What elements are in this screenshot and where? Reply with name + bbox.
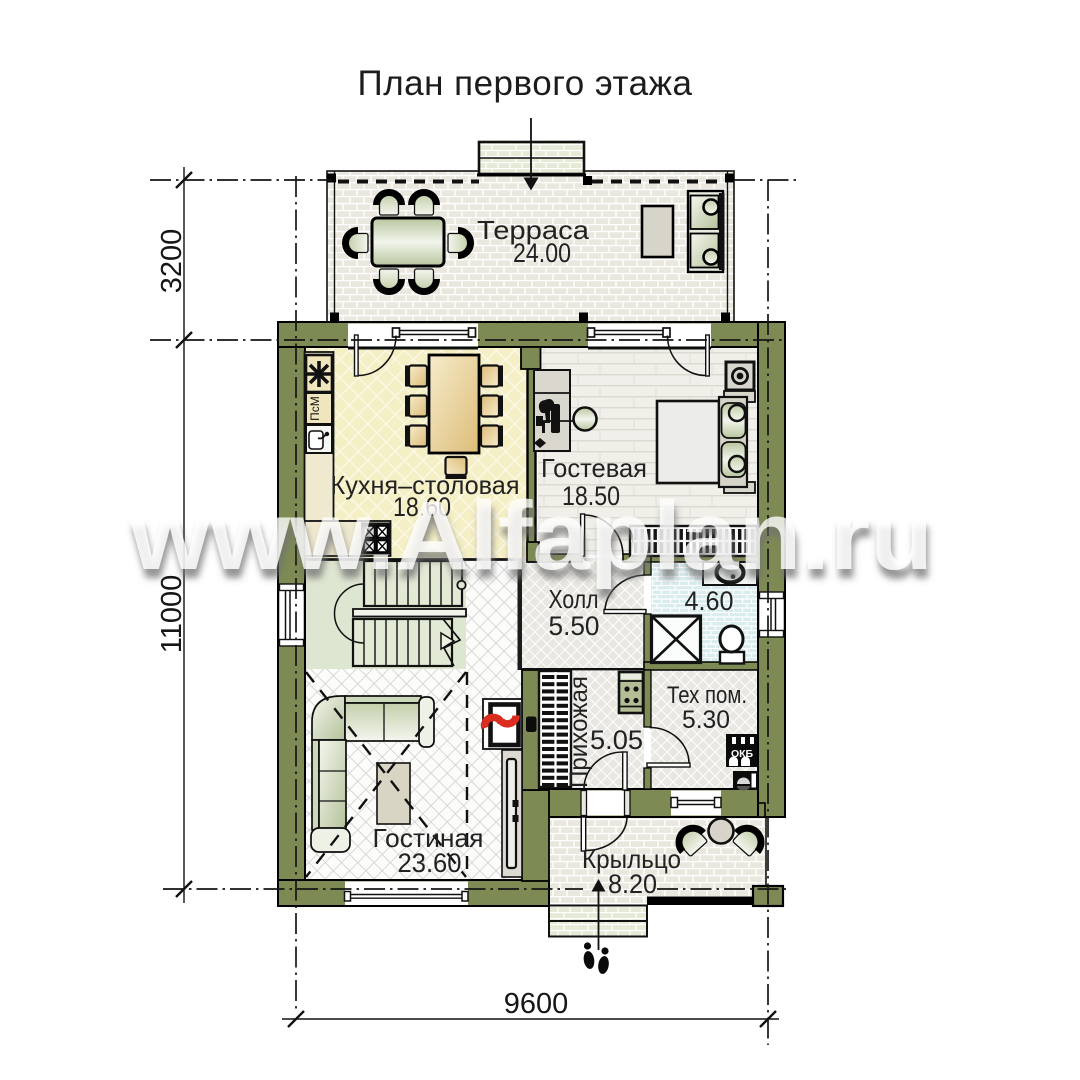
svg-text:9600: 9600 [504, 988, 569, 1020]
svg-text:Прихожая: Прихожая [565, 676, 593, 788]
svg-text:ПсМ: ПсМ [308, 396, 322, 421]
svg-text:4.60: 4.60 [685, 586, 734, 616]
svg-text:Гостевая: Гостевая [541, 453, 647, 483]
svg-text:Тех пом.: Тех пом. [667, 682, 747, 709]
svg-text:План первого этажа: План первого этажа [358, 64, 693, 103]
svg-text:5.50: 5.50 [549, 611, 600, 641]
svg-text:24.00: 24.00 [513, 238, 571, 268]
svg-text:8.20: 8.20 [608, 869, 657, 899]
svg-text:5.05: 5.05 [590, 725, 643, 755]
svg-text:www.Alfaplan.ru: www.Alfaplan.ru [129, 481, 933, 590]
svg-text:5.30: 5.30 [682, 706, 730, 734]
svg-text:23.60: 23.60 [398, 848, 462, 878]
svg-text:3200: 3200 [156, 229, 188, 294]
